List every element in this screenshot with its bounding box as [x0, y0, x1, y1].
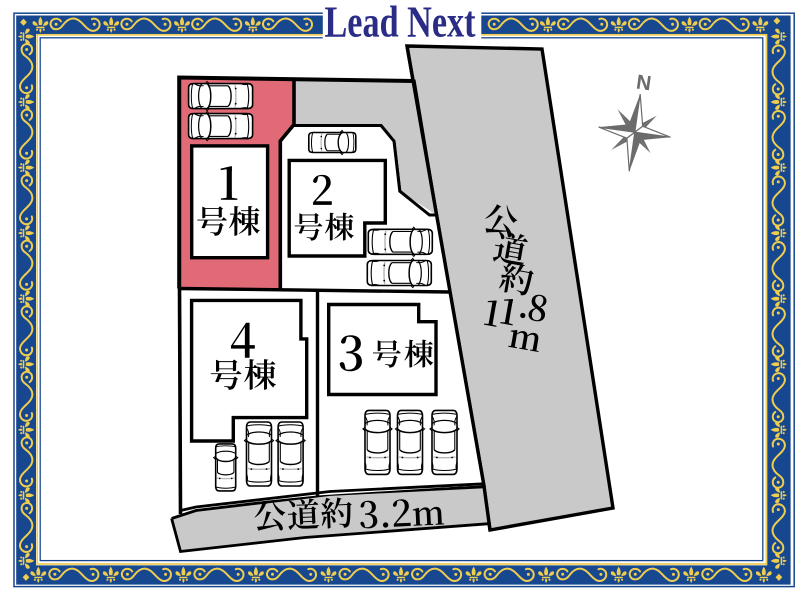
- svg-text:N: N: [635, 71, 653, 96]
- svg-text:Lead Next: Lead Next: [325, 0, 476, 46]
